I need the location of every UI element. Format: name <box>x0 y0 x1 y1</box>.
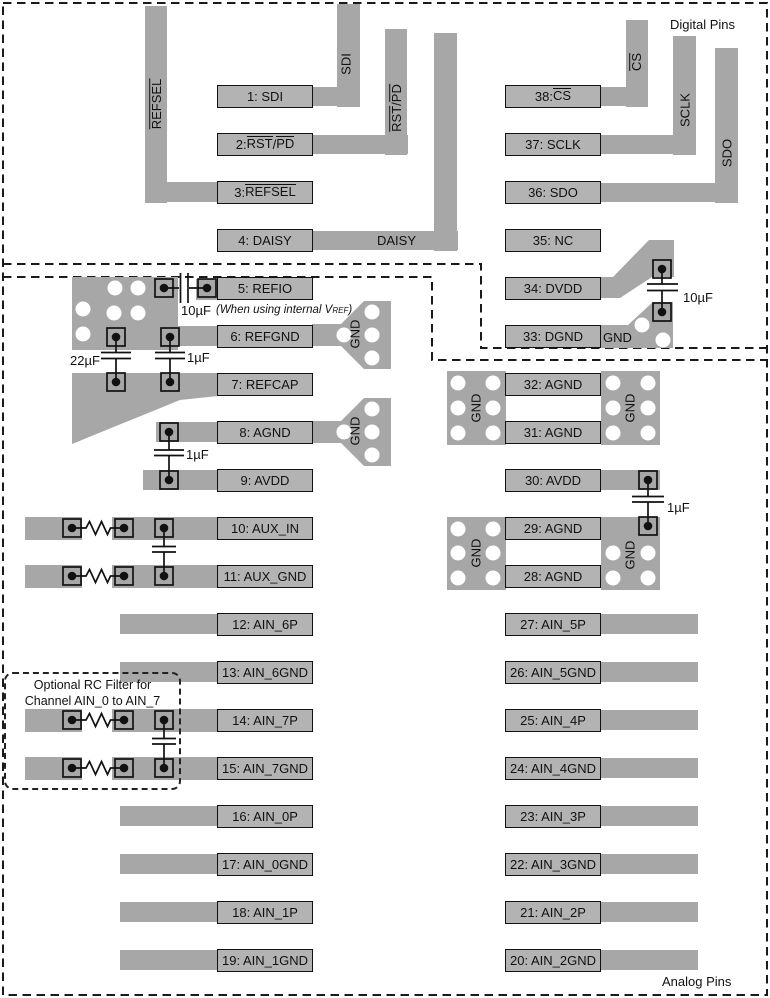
pin-8-box: 8: AGND <box>217 421 313 444</box>
pin-25-box: 25: AIN_4P <box>505 709 601 732</box>
text: 21: AIN_2P <box>520 905 586 920</box>
ain3p-trace <box>601 806 698 826</box>
refio-note-subscript: REF <box>332 306 348 315</box>
ain5p-trace <box>601 614 698 634</box>
gnd-label-plane32-right: GND <box>623 394 638 423</box>
sdo-trace-stub <box>601 183 738 202</box>
text: 3: <box>234 185 245 200</box>
text: 26: AIN_5GND <box>510 665 596 680</box>
gnd-label-tag8: GND <box>348 417 363 446</box>
text: 33: DGND <box>523 329 583 344</box>
cap-label-1uf-agnd: 1µF <box>186 447 209 462</box>
text: 34: DVDD <box>524 281 583 296</box>
analog-pins-label: Analog Pins <box>662 974 731 989</box>
text: 5: REFIO <box>238 281 292 296</box>
sdo-net-label: SDO <box>720 139 735 167</box>
text: 29: AGND <box>524 521 583 536</box>
pin-21-box: 21: AIN_2P <box>505 901 601 924</box>
cap-label-22uf: 22µF <box>70 353 100 368</box>
pin-35-box: 35: NC <box>505 229 601 252</box>
text: DAISY <box>377 233 416 248</box>
overlined-text: RST <box>247 136 273 152</box>
pin-30-box: 30: AVDD <box>505 469 601 492</box>
text: 20: AIN_2GND <box>510 953 596 968</box>
ain4p-trace <box>601 710 698 730</box>
daisy-trace-vertical <box>434 33 457 251</box>
text: 27: AIN_5P <box>520 617 586 632</box>
text: 25: AIN_4P <box>520 713 586 728</box>
gnd-label-plane32-left: GND <box>469 394 484 423</box>
overlined-text: PD <box>276 136 294 152</box>
sdi-trace-stub <box>312 87 360 106</box>
sclk-trace-stub <box>601 135 696 154</box>
overlined-text: PD <box>389 84 405 102</box>
overlined-text: REFSEL <box>149 79 165 130</box>
pin-5-box: 5: REFIO <box>217 277 313 300</box>
pin-1-box: 1: SDI <box>217 85 313 108</box>
pin-28-box: 28: AGND <box>505 565 601 588</box>
pin-20-box: 20: AIN_2GND <box>505 949 601 972</box>
ain3gnd-trace <box>601 854 698 874</box>
text: 31: AGND <box>524 425 583 440</box>
pin-33-box: 33: DGND <box>505 325 601 348</box>
pcb-layout-diagram: Digital Pins Analog Pins REFSEL SDI RST/… <box>0 0 770 998</box>
rstpd-net-label: RST/PD <box>389 84 405 132</box>
sclk-net-label: SCLK <box>678 93 693 127</box>
pin-4-box: 4: DAISY <box>217 229 313 252</box>
pin-13-box: 13: AIN_6GND <box>217 661 313 684</box>
text: 9: AVDD <box>241 473 290 488</box>
pin-14-box: 14: AIN_7P <box>217 709 313 732</box>
cs-trace-stub <box>601 87 648 106</box>
pin-10-box: 10: AUX_IN <box>217 517 313 540</box>
text: 7: REFCAP <box>231 377 298 392</box>
overlined-text: REFSEL <box>245 184 296 200</box>
pin-11-box: 11: AUX_GND <box>217 565 313 588</box>
pin-15-box: 15: AIN_7GND <box>217 757 313 780</box>
text: 18: AIN_1P <box>232 905 298 920</box>
text: 23: AIN_3P <box>520 809 586 824</box>
text: / <box>389 102 404 106</box>
text: 38: <box>535 89 553 104</box>
text: SDO <box>720 139 735 167</box>
rc-filter-line2: Channel AIN_0 to AIN_7 <box>6 693 179 709</box>
pin-36-box: 36: SDO <box>505 181 601 204</box>
text: 32: AGND <box>524 377 583 392</box>
pin-3-box: 3: REFSEL <box>217 181 313 204</box>
pin-27-box: 27: AIN_5P <box>505 613 601 636</box>
pin-26-box: 26: AIN_5GND <box>505 661 601 684</box>
sdo-trace-vertical <box>715 48 738 203</box>
ain0gnd-trace <box>120 854 218 874</box>
rc-filter-line1: Optional RC Filter for <box>6 677 179 693</box>
text: 6: REFGND <box>230 329 299 344</box>
avdd9-trace <box>143 470 218 490</box>
text: SCLK <box>678 93 693 127</box>
text: 12: AIN_6P <box>232 617 298 632</box>
text: 30: AVDD <box>525 473 581 488</box>
ain0p-trace <box>120 806 218 826</box>
pin-12-box: 12: AIN_6P <box>217 613 313 636</box>
text: 17: AIN_0GND <box>222 857 308 872</box>
text: 19: AIN_1GND <box>222 953 308 968</box>
text: 10: AUX_IN <box>231 521 299 536</box>
rstpd-trace-stub <box>312 135 408 154</box>
pin-29-box: 29: AGND <box>505 517 601 540</box>
gnd-label-plane29-right: GND <box>623 541 638 570</box>
cap-label-10uf-dvdd: 10µF <box>683 290 713 305</box>
gnd-label-tag6: GND <box>348 320 363 349</box>
pin-2-box: 2: RST/PD <box>217 133 313 156</box>
pin-34-box: 34: DVDD <box>505 277 601 300</box>
ain2gnd-trace <box>601 950 698 970</box>
cap-label-refio-10uf: 10µF <box>181 303 211 318</box>
pin-24-box: 24: AIN_4GND <box>505 757 601 780</box>
cap-label-1uf-avdd: 1µF <box>667 500 690 515</box>
ain1gnd-trace <box>120 950 218 970</box>
gnd-label-dgnd: GND <box>603 330 632 345</box>
pin-17-box: 17: AIN_0GND <box>217 853 313 876</box>
pin-18-box: 18: AIN_1P <box>217 901 313 924</box>
text: 24: AIN_4GND <box>510 761 596 776</box>
text: 1: SDI <box>247 89 283 104</box>
text: 16: AIN_0P <box>232 809 298 824</box>
pin-16-box: 16: AIN_0P <box>217 805 313 828</box>
overlined-text: RST <box>389 106 405 132</box>
rc-filter-callout: Optional RC Filter for Channel AIN_0 to … <box>4 672 181 790</box>
pin-9-box: 9: AVDD <box>217 469 313 492</box>
text: 22: AIN_3GND <box>510 857 596 872</box>
text: 35: NC <box>533 233 573 248</box>
text: 13: AIN_6GND <box>222 665 308 680</box>
text: 4: DAISY <box>238 233 291 248</box>
pin-6-box: 6: REFGND <box>217 325 313 348</box>
sdi-net-label: SDI <box>339 53 354 75</box>
ain4gnd-trace <box>601 758 698 778</box>
text: 37: SCLK <box>525 137 581 152</box>
text: 28: AGND <box>524 569 583 584</box>
refgnd-strip <box>72 326 218 346</box>
ain5gnd-trace <box>601 662 698 682</box>
text: 36: SDO <box>528 185 578 200</box>
gnd-label-plane29-left: GND <box>469 539 484 568</box>
pin-22-box: 22: AIN_3GND <box>505 853 601 876</box>
cap-label-1uf-ref: 1µF <box>187 350 210 365</box>
ain6p-trace <box>120 614 218 634</box>
text: SDI <box>339 53 354 75</box>
refsel-trace-horizontal <box>145 182 218 202</box>
pin-7-box: 7: REFCAP <box>217 373 313 396</box>
pin-38-box: 38: CS <box>505 85 601 108</box>
text: 15: AIN_7GND <box>222 761 308 776</box>
pin-32-box: 32: AGND <box>505 373 601 396</box>
cs-net-label: CS <box>629 53 645 71</box>
refio-note-close: ) <box>348 304 352 316</box>
ain1p-trace <box>120 902 218 922</box>
digital-pins-label: Digital Pins <box>670 17 735 32</box>
refsel-net-label: REFSEL <box>149 79 165 130</box>
text: 14: AIN_7P <box>232 713 298 728</box>
daisy-net-label: DAISY <box>377 233 416 248</box>
refio-note: (When using internal VREF) <box>216 304 352 316</box>
refio-note-text: (When using internal V <box>216 304 332 316</box>
pin-23-box: 23: AIN_3P <box>505 805 601 828</box>
overlined-text: CS <box>629 53 645 71</box>
pin-37-box: 37: SCLK <box>505 133 601 156</box>
text: 2: <box>236 137 247 152</box>
overlined-text: CS <box>553 88 571 104</box>
text: 8: AGND <box>239 425 290 440</box>
pin-19-box: 19: AIN_1GND <box>217 949 313 972</box>
diagram-canvas <box>0 0 770 998</box>
ain2p-trace <box>601 902 698 922</box>
pin-31-box: 31: AGND <box>505 421 601 444</box>
text: 11: AUX_GND <box>224 569 307 584</box>
copper-shapes <box>25 4 738 970</box>
